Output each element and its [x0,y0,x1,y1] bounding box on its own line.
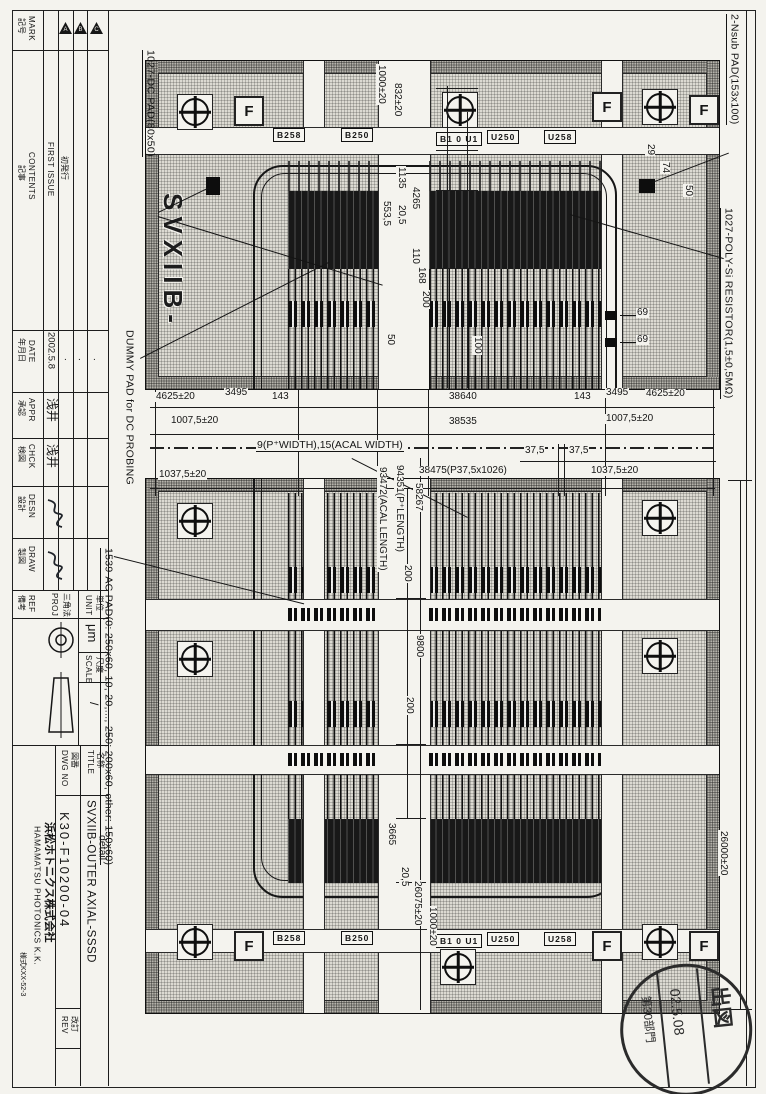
third-angle-projection-icon [47,620,75,740]
dwgno-label-jp: 図番 [70,752,78,768]
proj-label: PROJ [50,593,58,616]
fiducial-f-icon: F [592,92,622,122]
dim-text: 20,5 [396,204,406,225]
mark-label-jp: 記号 [17,18,25,34]
rev-label-jp: 改訂 [70,1016,78,1032]
fiducial-crosshair-icon [177,641,213,677]
date-dot: . [93,352,96,363]
strip-id-label: B258 [273,128,305,142]
dim-text: 3665 [386,822,396,846]
dim-text: 26075±20 [412,880,422,926]
chck-signature: 浅井 [46,444,58,468]
dim-text: 4265 [410,186,420,210]
strip-array [429,269,601,389]
fiducial-crosshair-icon [177,924,213,960]
dim-text: 143 [573,392,592,402]
strip-id-label: U258 [544,932,576,946]
dim-text: 38640 [448,392,478,402]
strip-id-label: U250 [487,130,519,144]
stamp-text-right: 出図 [708,985,733,1029]
dim-text: 38535 [448,417,478,427]
draw-label-jp: 製図 [17,548,25,564]
date-label: DATE [27,340,35,363]
resistor-pad-band [429,819,601,883]
contents-label: CONTENTS [27,152,35,200]
fiducial-crosshair-icon [177,94,213,130]
dim-text: 74 [660,161,670,174]
dim-text: 200 [402,564,412,583]
dim-text: 1037,5±20 [158,470,207,480]
label-street [146,127,719,155]
dim-text: 26000±20 [718,830,728,876]
contents-label-jp: 記事 [17,165,25,181]
form-number: 様式KXX-52-3 [19,952,26,996]
strip-id-label: B250 [341,128,373,142]
probe-pad-row [429,567,601,593]
fiducial-crosshair-icon [642,638,678,674]
probe-pad-row [429,701,601,727]
strip-width-callout: 9(P⁺WIDTH),15(ACAL WIDTH) [256,440,404,452]
dim-text: 93472(ACAL LENGTH) [377,466,387,572]
mark-label: MARK [27,16,35,41]
dim-text: 38475(P37,5x1026) [418,466,508,476]
dim-text: 58267 [413,482,423,512]
appr-label: APPR [27,398,35,422]
dim-text: 94351(P⁺LENGTH) [394,464,404,553]
dc-pad-callout: 1027-DC PAD(80x50) [142,50,156,157]
strip-id-label: B1 0 U1 [436,934,482,948]
strip-id-label: U258 [544,130,576,144]
resistor-pad-band [288,819,378,883]
fiducial-crosshair-icon [642,89,678,125]
bias-pad [605,338,617,347]
dim-text: 110 [410,247,420,265]
desn-label: DESN [27,494,35,518]
chck-label-jp: 検図 [17,446,25,462]
ac-pad-row [429,161,601,191]
cross-street [146,599,719,631]
signature-icon [44,548,68,582]
fiducial-crosshair-icon [440,949,476,985]
dim-text: 1037,5±20 [590,466,639,476]
release-stamp: 出図 02.5.08 第30部門 [609,953,758,1094]
dim-text: 1007,5±20 [605,414,654,424]
first-issue-jp: 初発行 [60,156,68,180]
date-label-jp: 年月日 [17,338,25,362]
frame-inner-right-line [746,10,747,1086]
desn-label-jp: 設計 [17,496,25,512]
dim-text: 37,5 [524,446,545,456]
dim-text: 50 [385,333,395,346]
dim-text: 553,5 [381,200,391,227]
dwgno-label: DWG NO [60,750,68,787]
cross-street [146,745,719,775]
dim-text: 50 [683,184,693,197]
fiducial-crosshair-icon [642,924,678,960]
resistor-pad-band [288,191,378,269]
ac-pad-row [288,161,378,191]
dim-text: 1000±20 [427,906,437,947]
unit-label: UNIT [84,595,92,616]
date-dot: . [64,352,67,363]
dim-text: 832±20 [392,82,402,117]
fiducial-f-icon: F [689,95,719,125]
dim-text: 1007,5±20 [170,416,219,426]
dim-text: 200 [420,290,430,309]
probe-pad-row [288,567,378,593]
draw-label: DRAW [27,546,35,572]
rev-label: REV [60,1016,68,1034]
resistor-pad-band [429,191,601,269]
date-dot: . [78,352,81,363]
dim-text: 4625±20 [645,389,686,399]
strip-id-label: B258 [273,931,305,945]
dummy-pad-callout: DUMMY PAD for DC PROBING [124,330,135,485]
date-value: 2002.5.8 [46,332,56,369]
chck-label: CHCK [27,444,35,469]
strip-id-label: U250 [487,932,519,946]
company-name-en: HAMAMATSU PHOTONICS K.K. [33,826,42,965]
drawing-title: SVXIIB-OUTER AXIAL-SSSD [84,800,96,963]
dim-text: 3495 [224,388,248,398]
strip-id-label: B1 0 U1 [436,132,482,146]
proj-label-jp: 三角法 [62,593,70,617]
ref-label-jp: 備考 [17,595,25,611]
dim-text: 9800 [414,634,424,658]
drawing-sheet: MARK 記号 A B C CONTENTS 記事 FIRST ISSUE 初発… [0,0,766,1094]
scale-label: SCALE [84,655,92,684]
dim-text: 143 [271,392,290,402]
signature-icon [44,496,68,530]
fiducial-f-icon: F [234,931,264,961]
dc-pad [206,177,220,195]
dim-text: 4625±20 [155,392,196,402]
probe-pad-row [288,301,378,327]
bias-pad [605,311,617,320]
dim-text: 3495 [605,388,629,398]
appr-label-jp: 承認 [17,400,25,416]
dim-text: 20,5 [399,866,409,887]
dim-text: 200 [404,696,414,715]
sensor-die-top: F F F SVXIIB- B258 B250 B1 0 U1 U250 U25… [145,60,720,390]
nsub-pad-callout: 2-Nsub PAD(153x100) [726,14,740,125]
dim-text: 37,5 [568,446,589,456]
scale-value: / [88,702,100,705]
ac-pad-callout: 1539-AC PAD(0: 250x60, 10, 20,..., 250: … [100,548,114,865]
fiducial-f-icon: F [234,96,264,126]
company-name-jp: 浜松ホトニクス株式会社 [43,822,54,943]
probe-pad-row [429,301,601,327]
dim-text: 69 [636,308,649,318]
poly-resistor-callout: 1027-POLY-Si RESISTOR(1,5±0,5MΩ) [720,208,734,399]
strip-array [288,269,378,389]
fiducial-f-icon: F [592,931,622,961]
dim-text: 1135 [396,166,406,190]
fiducial-crosshair-icon [642,500,678,536]
title-label: TITLE [86,750,94,774]
die-printed-label: SVXIIB- [160,193,186,329]
dim-text: 168 [416,266,426,285]
ref-label: REF [27,595,35,613]
dim-text: 29 [645,143,655,156]
drawing-number: K30-F10200-04 [58,812,71,928]
probe-pad-row [288,701,378,727]
first-issue: FIRST ISSUE [46,142,54,197]
appr-signature: 浅井 [46,398,58,422]
fiducial-crosshair-icon [177,503,213,539]
dim-text: 69 [636,335,649,345]
strip-id-label: B250 [341,931,373,945]
dim-text: 100 [472,336,482,355]
unit-value: μm [86,624,99,642]
dim-text: 1000±20 [376,64,386,105]
